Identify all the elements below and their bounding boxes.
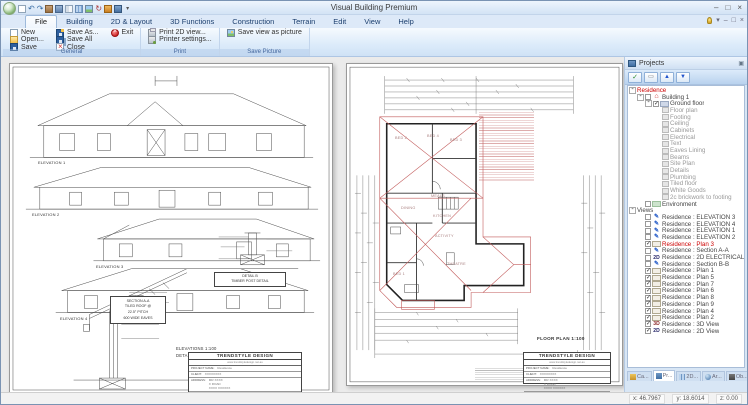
projects-panel-header[interactable]: Projects ▣: [625, 57, 747, 70]
layer-icon: [662, 148, 669, 154]
visibility-checkbox[interactable]: [645, 248, 651, 254]
printer-settings-icon: [148, 36, 156, 44]
elevation-label: ELEVATION 4: [60, 316, 87, 321]
catalog-tab-icon: [630, 374, 636, 380]
ribbon-tab-construction[interactable]: Construction: [223, 16, 283, 28]
title-bar: ↶ ↷ ↻ ▾ Visual Building Premium – □ ×: [1, 1, 747, 15]
env-icon: [652, 201, 661, 207]
document-elevations[interactable]: ELEVATION 1 ELEVATION 2 ELEVATION 3 ELEV…: [9, 63, 333, 394]
qat-flag-icon[interactable]: [104, 5, 112, 13]
pencil-icon: ✎: [652, 261, 661, 267]
elevation-label: ELEVATION 1: [38, 160, 65, 165]
qat-undo-icon[interactable]: ↶: [28, 4, 35, 14]
tree-item-label: Views: [637, 207, 653, 214]
projects-panel: Projects ▣ ✓ ▭ ▲ ▼ -Residence-⌂Building …: [624, 57, 747, 392]
plan-icon: [652, 308, 661, 314]
ribbon-tab-2d-layout[interactable]: 2D & Layout: [102, 16, 161, 28]
save-view-as-picture-button[interactable]: Save view as picture: [225, 29, 304, 36]
ribbon-tab-row: FileBuilding2D & Layout3D FunctionsConst…: [1, 15, 747, 28]
layer-icon: [662, 141, 669, 147]
layer-icon: [662, 161, 669, 167]
pencil-icon: ✎: [652, 248, 661, 254]
room-label: MEALS: [431, 194, 445, 198]
coordinate-y: y: 18.6014: [672, 394, 708, 404]
ribbon: New Open... Save Save As... Save All Clo…: [1, 28, 747, 57]
room-label: BED 3: [450, 138, 462, 142]
visibility-checkbox[interactable]: ✓: [645, 321, 651, 327]
room-label: BED 2: [395, 136, 407, 140]
ribbon-tab-edit[interactable]: Edit: [324, 16, 355, 28]
qat-layout-icon[interactable]: [75, 5, 83, 13]
area-tab-icon: [705, 374, 711, 380]
apply-button[interactable]: ✓: [628, 72, 642, 83]
plan-icon: [652, 281, 661, 287]
tree-item[interactable]: Electrical: [628, 134, 744, 141]
qat-new-icon[interactable]: [18, 5, 26, 13]
3d-icon: 3D: [652, 321, 661, 327]
room-label: THEATRE: [447, 262, 466, 266]
visibility-checkbox[interactable]: ✓: [645, 301, 651, 307]
print-2d-view-button[interactable]: Print 2D view...: [146, 29, 214, 36]
ribbon-group-label-general: General: [3, 49, 140, 56]
visibility-checkbox[interactable]: [645, 221, 651, 227]
elevation-label: ELEVATION 3: [96, 264, 123, 269]
plan-icon: [652, 241, 661, 247]
help-dropdown-icon[interactable]: ▾: [716, 16, 720, 24]
coordinate-z: z: 0.00: [716, 394, 742, 404]
room-label: DINING: [401, 206, 416, 210]
visibility-checkbox[interactable]: ✓: [645, 308, 651, 314]
document-floor-plan[interactable]: BED 2 BED 4 BED 3 MEALS DINING KITCHEN A…: [346, 63, 623, 386]
ribbon-tab-3d-functions[interactable]: 3D Functions: [161, 16, 223, 28]
expander-icon[interactable]: -: [637, 94, 644, 101]
visibility-checkbox[interactable]: [645, 255, 651, 261]
layer-icon: [662, 181, 669, 187]
title-block: TRENDSTYLE DESIGN www.trendstyledesign.n…: [523, 352, 611, 384]
exit-button[interactable]: Exit: [109, 29, 136, 36]
panel-tab-projects[interactable]: Pr...: [653, 370, 676, 381]
qat-customize-dropdown-icon[interactable]: ▾: [126, 5, 129, 12]
plan-icon: [652, 268, 661, 274]
projects-tab-icon: [656, 373, 662, 379]
cursor-coordinates: x: 46.7967 y: 18.6014 z: 0.00: [624, 393, 747, 404]
app-logo-button[interactable]: [3, 2, 16, 15]
tree-item-label: Residence : 2D View: [662, 328, 719, 335]
visibility-checkbox[interactable]: [645, 214, 651, 220]
visibility-checkbox[interactable]: ✓: [645, 268, 651, 274]
ribbon-group-save-picture: Save view as picture Save Picture: [220, 28, 310, 56]
qat-redo-icon[interactable]: ↷: [37, 4, 44, 14]
panel-tab-2d[interactable]: 2D...: [676, 371, 701, 381]
building-icon: ⌂: [652, 94, 661, 100]
visibility-checkbox[interactable]: ✓: [653, 101, 659, 107]
ribbon-tab-view[interactable]: View: [355, 16, 389, 28]
expander-icon[interactable]: -: [629, 207, 636, 214]
printer-settings-button[interactable]: Printer settings...: [146, 36, 214, 43]
plan-icon: [652, 315, 661, 321]
plan-icon: [652, 275, 661, 281]
detail-b-label-box: DETAIL B TIMBER POST DETAIL: [214, 272, 286, 287]
help-icon[interactable]: [707, 17, 712, 24]
plan-icon: [652, 288, 661, 294]
projects-icon: [628, 60, 636, 67]
minimize-button[interactable]: –: [714, 3, 718, 13]
document-minimize-button[interactable]: –: [724, 17, 728, 24]
expander-icon[interactable]: -: [629, 87, 636, 94]
qat-picture-icon[interactable]: [85, 5, 93, 13]
qat-split-view-icon[interactable]: [65, 5, 73, 13]
pencil-icon: ✎: [652, 221, 661, 227]
move-down-button[interactable]: ▼: [676, 72, 690, 83]
qat-package-icon[interactable]: [114, 5, 122, 13]
quick-access-toolbar: ↶ ↷ ↻ ▾: [3, 2, 129, 15]
qat-refresh-icon[interactable]: ↻: [95, 4, 102, 14]
ribbon-tab-help[interactable]: Help: [389, 16, 422, 28]
panel-tab-area[interactable]: Ar...: [702, 371, 725, 381]
specification-notes: [479, 112, 534, 182]
drawing-workspace: ELEVATION 1 ELEVATION 2 ELEVATION 3 ELEV…: [1, 57, 747, 392]
expander-icon[interactable]: -: [645, 100, 652, 107]
picture-icon: [227, 29, 235, 37]
pencil-icon: ✎: [652, 234, 661, 240]
plan-icon: [652, 301, 661, 307]
layer-icon: [662, 188, 669, 194]
visibility-checkbox[interactable]: ✓: [645, 281, 651, 287]
room-label: ACTIVITY: [435, 234, 454, 238]
section-note-box: SECTION A-A TILED ROOF @ 22.5° PITCH 600…: [110, 296, 166, 324]
projects-panel-title: Projects: [639, 60, 664, 67]
coordinate-x: x: 46.7967: [629, 394, 665, 404]
elevations-drawing: [10, 64, 332, 393]
exit-icon: [111, 29, 119, 37]
qat-3d-view-icon[interactable]: [45, 5, 53, 13]
maximize-button[interactable]: □: [725, 3, 730, 13]
room-label: BED 1: [393, 272, 405, 276]
visibility-checkbox[interactable]: [645, 201, 651, 207]
layer-icon: [662, 154, 669, 160]
tree-item[interactable]: ✓2DResidence : 2D View: [628, 328, 744, 335]
ribbon-group-label-print: Print: [141, 49, 219, 56]
ribbon-group-print: Print 2D view... Printer settings... Pri…: [141, 28, 220, 56]
2d-icon: 2D: [652, 255, 661, 261]
visibility-checkbox[interactable]: ✓: [645, 241, 651, 247]
close-button[interactable]: ×: [737, 3, 742, 13]
panel-tab-strip: Ca...Pr...2D...Ar...Ob...PV...: [627, 369, 745, 381]
document-restore-button[interactable]: □: [732, 17, 736, 24]
ribbon-tab-file[interactable]: File: [25, 15, 57, 28]
panel-tab-objects[interactable]: Ob...: [726, 371, 748, 381]
pencil-icon: ✎: [652, 228, 661, 234]
application-window: ↶ ↷ ↻ ▾ Visual Building Premium – □ × Fi…: [0, 0, 748, 405]
ribbon-group-general: New Open... Save Save As... Save All Clo…: [3, 28, 141, 56]
visibility-checkbox[interactable]: ✓: [645, 328, 651, 334]
2d-icon: 2D: [652, 328, 661, 334]
panel-tab-catalog[interactable]: Ca...: [627, 371, 652, 381]
objects-tab-icon: [729, 374, 735, 380]
document-close-button[interactable]: ×: [740, 17, 744, 24]
plan-scale-label: FLOOR PLAN 1:100: [537, 336, 585, 341]
ribbon-group-label-save-picture: Save Picture: [220, 49, 309, 56]
project-tree: -Residence-⌂Building 1-✓Ground floorFloo…: [627, 85, 745, 368]
ribbon-tab-terrain[interactable]: Terrain: [283, 16, 324, 28]
options-button[interactable]: ▭: [644, 72, 658, 83]
room-label: BED 4: [427, 134, 439, 138]
floor-icon: [660, 101, 669, 107]
tree-item-label: Environment: [662, 201, 697, 208]
visibility-checkbox[interactable]: ✓: [645, 275, 651, 281]
visibility-checkbox[interactable]: ✓: [645, 288, 651, 294]
visibility-checkbox[interactable]: [645, 261, 651, 267]
layer-icon: [662, 168, 669, 174]
pencil-icon: ✎: [652, 214, 661, 220]
elevation-label: ELEVATION 2: [32, 212, 59, 217]
layer-icon: [662, 107, 669, 113]
move-up-button[interactable]: ▲: [660, 72, 674, 83]
layer-icon: [662, 134, 669, 140]
qat-2d-view-icon[interactable]: [55, 5, 63, 13]
room-label: KITCHEN: [433, 214, 451, 218]
title-block: TRENDSTYLE DESIGN www.trendstyledesign.n…: [188, 352, 302, 392]
layer-icon: [662, 121, 669, 127]
visibility-checkbox[interactable]: ✓: [645, 295, 651, 301]
pin-icon[interactable]: ▣: [738, 60, 744, 67]
plan-icon: [652, 295, 661, 301]
visibility-checkbox[interactable]: [645, 234, 651, 240]
projects-toolbar: ✓ ▭ ▲ ▼: [625, 70, 747, 85]
layer-icon: [662, 127, 669, 133]
layer-icon: [662, 194, 669, 200]
ribbon-tab-building[interactable]: Building: [57, 16, 102, 28]
visibility-checkbox[interactable]: [645, 228, 651, 234]
2d-tab-icon: [679, 374, 685, 380]
ribbon-tabs: FileBuilding2D & Layout3D FunctionsConst…: [25, 15, 747, 28]
layer-icon: [662, 174, 669, 180]
status-bar: x: 46.7967 y: 18.6014 z: 0.00: [1, 392, 747, 404]
visibility-checkbox[interactable]: ✓: [645, 315, 651, 321]
layer-icon: [662, 114, 669, 120]
